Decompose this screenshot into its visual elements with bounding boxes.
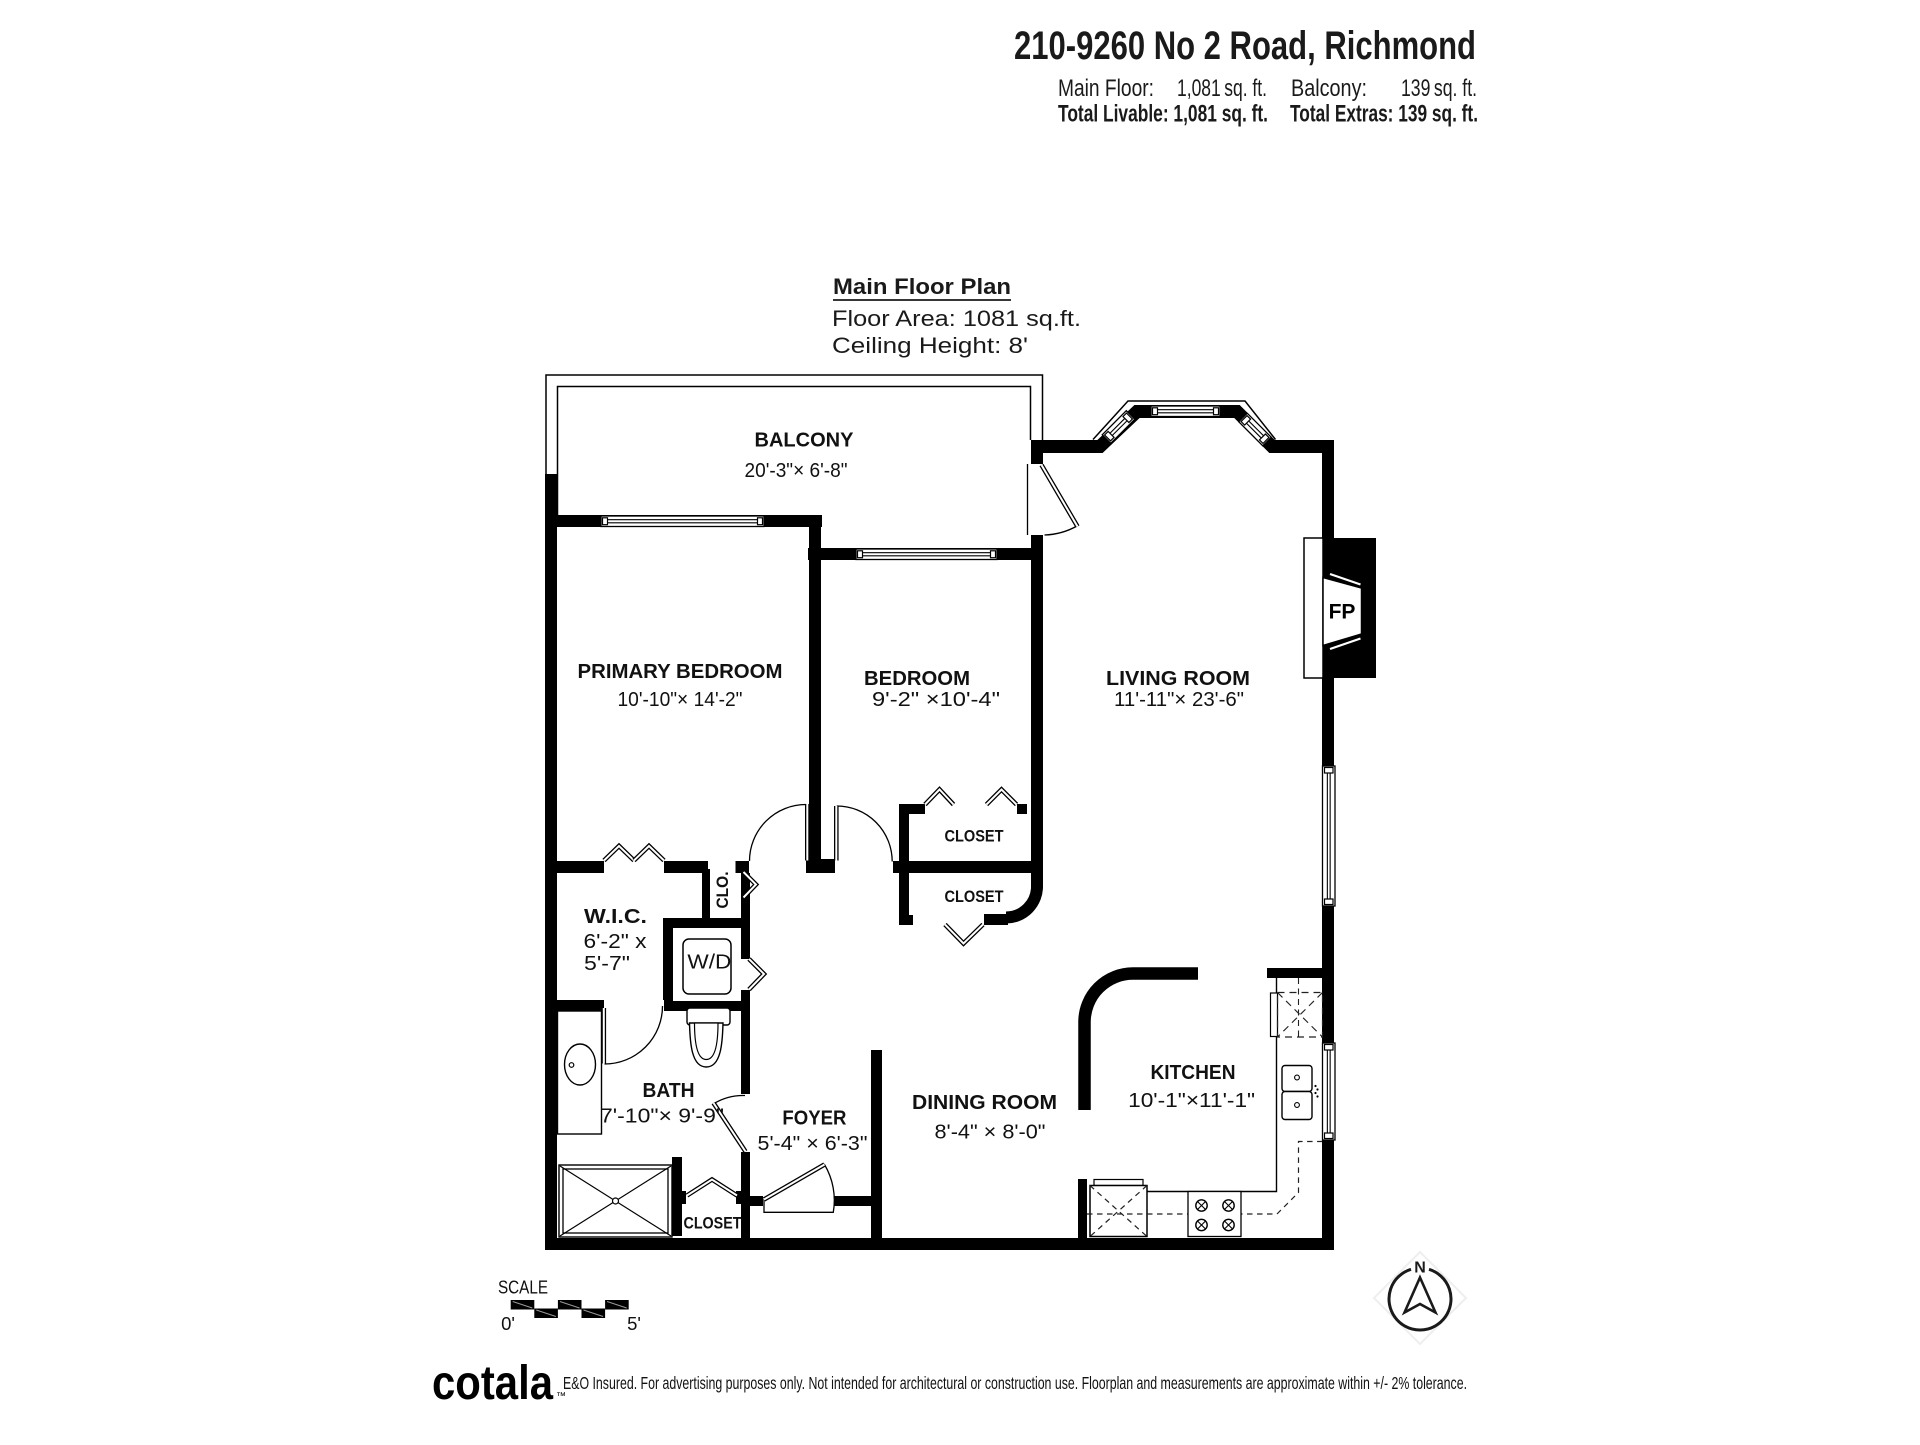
svg-text:PRIMARY BEDROOM: PRIMARY BEDROOM — [578, 660, 783, 683]
svg-text:6'-2" x: 6'-2" x — [584, 931, 647, 953]
svg-text:Floor Area: 1081 sq.ft.: Floor Area: 1081 sq.ft. — [832, 306, 1081, 331]
svg-text:Ceiling Height: 8': Ceiling Height: 8' — [832, 333, 1028, 358]
svg-text:CLO.: CLO. — [713, 872, 732, 909]
svg-text:W.I.C.: W.I.C. — [584, 905, 647, 928]
svg-text:BEDROOM: BEDROOM — [864, 667, 970, 690]
svg-text:11'-11"× 23'-6": 11'-11"× 23'-6" — [1114, 689, 1244, 711]
svg-text:BALCONY: BALCONY — [755, 429, 854, 452]
svg-text:7'-10"× 9'-9": 7'-10"× 9'-9" — [600, 1106, 724, 1128]
svg-text:FOYER: FOYER — [782, 1107, 846, 1130]
svg-text:CLOSET: CLOSET — [945, 828, 1004, 846]
svg-text:BATH: BATH — [643, 1079, 695, 1102]
svg-text:SCALE: SCALE — [498, 1277, 548, 1298]
svg-text:10'-10"× 14'-2": 10'-10"× 14'-2" — [618, 689, 743, 711]
svg-text:N: N — [1414, 1260, 1426, 1277]
svg-text:E&O Insured. For advertising p: E&O Insured. For advertising purposes on… — [563, 1373, 1467, 1393]
svg-text:Total Livable: 1,081 sq. ft.: Total Livable: 1,081 sq. ft. — [1058, 101, 1268, 128]
svg-text:210-9260 No 2 Road, Richmond: 210-9260 No 2 Road, Richmond — [1014, 24, 1476, 68]
svg-text:KITCHEN: KITCHEN — [1151, 1061, 1236, 1084]
svg-text:8'-4" × 8'-0": 8'-4" × 8'-0" — [935, 1122, 1046, 1144]
svg-text:CLOSET: CLOSET — [684, 1215, 742, 1233]
svg-text:9'-2" ×10'-4": 9'-2" ×10'-4" — [872, 689, 1000, 711]
svg-text:FP: FP — [1329, 601, 1356, 624]
svg-text:CLOSET: CLOSET — [945, 888, 1004, 906]
svg-text:20'-3"× 6'-8": 20'-3"× 6'-8" — [745, 460, 848, 482]
svg-text:5'-7": 5'-7" — [584, 953, 630, 975]
svg-text:1,081 sq. ft.: 1,081 sq. ft. — [1177, 75, 1267, 102]
svg-text:Main Floor:: Main Floor: — [1058, 75, 1154, 102]
svg-text:LIVING ROOM: LIVING ROOM — [1106, 667, 1250, 690]
svg-text:W/D: W/D — [687, 952, 731, 974]
svg-text:139 sq. ft.: 139 sq. ft. — [1401, 75, 1477, 102]
svg-text:Total Extras: 139 sq. ft.: Total Extras: 139 sq. ft. — [1290, 101, 1478, 128]
svg-text:5': 5' — [627, 1313, 641, 1334]
svg-text:Balcony:: Balcony: — [1291, 75, 1367, 102]
svg-text:0': 0' — [501, 1313, 515, 1334]
svg-text:Main Floor Plan: Main Floor Plan — [833, 274, 1011, 299]
svg-text:10'-1"×11'-1": 10'-1"×11'-1" — [1128, 1090, 1255, 1112]
svg-text:DINING ROOM: DINING ROOM — [912, 1091, 1057, 1114]
svg-text:cotala: cotala — [432, 1357, 553, 1410]
svg-text:5'-4" × 6'-3": 5'-4" × 6'-3" — [758, 1133, 868, 1155]
